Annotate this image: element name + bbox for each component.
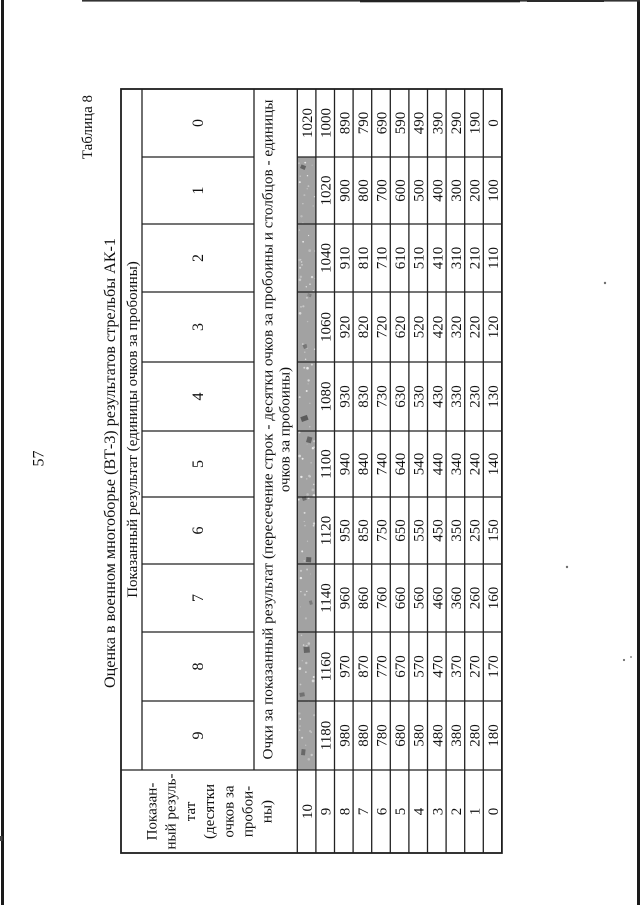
svg-text:260: 260 (468, 587, 484, 610)
svg-text:850: 850 (356, 519, 372, 542)
svg-text:400: 400 (430, 179, 446, 202)
svg-text:930: 930 (337, 385, 353, 408)
svg-text:840: 840 (356, 453, 372, 476)
svg-text:4: 4 (190, 393, 207, 401)
svg-text:540: 540 (412, 453, 428, 476)
svg-text:450: 450 (430, 519, 446, 542)
svg-text:380: 380 (449, 724, 465, 747)
svg-text:950: 950 (337, 519, 353, 542)
svg-text:980: 980 (337, 724, 353, 747)
svg-text:9: 9 (319, 808, 335, 816)
svg-text:580: 580 (412, 724, 428, 747)
svg-text:200: 200 (468, 179, 484, 202)
svg-text:490: 490 (412, 112, 428, 135)
svg-text:120: 120 (486, 316, 502, 339)
svg-text:880: 880 (356, 724, 372, 747)
svg-text:1140: 1140 (319, 583, 335, 612)
svg-text:1000: 1000 (319, 108, 335, 138)
svg-text:910: 910 (337, 247, 353, 270)
svg-text:960: 960 (337, 587, 353, 610)
svg-text:8: 8 (190, 663, 207, 671)
svg-text:Оценка в военном многоборье (В: Оценка в военном многоборье (ВТ-3) резул… (102, 238, 119, 688)
svg-text:1080: 1080 (319, 382, 335, 412)
svg-text:110: 110 (486, 247, 502, 269)
svg-text:140: 140 (486, 453, 502, 476)
svg-text:500: 500 (412, 179, 428, 202)
svg-text:640: 640 (393, 453, 409, 476)
svg-text:720: 720 (375, 316, 391, 339)
svg-text:550: 550 (412, 519, 428, 542)
svg-text:очков за: очков за (221, 785, 237, 837)
svg-text:280: 280 (468, 724, 484, 747)
svg-text:690: 690 (375, 112, 391, 135)
svg-text:410: 410 (430, 247, 446, 270)
svg-text:860: 860 (356, 587, 372, 610)
svg-text:1: 1 (190, 187, 207, 195)
svg-text:0: 0 (190, 119, 207, 127)
svg-text:780: 780 (375, 724, 391, 747)
svg-text:970: 970 (337, 655, 353, 678)
svg-text:620: 620 (393, 316, 409, 339)
svg-text:760: 760 (375, 587, 391, 610)
svg-text:670: 670 (393, 655, 409, 678)
svg-text:100: 100 (486, 179, 502, 202)
svg-text:240: 240 (468, 453, 484, 476)
svg-text:2: 2 (449, 808, 465, 816)
svg-text:360: 360 (449, 587, 465, 610)
svg-text:390: 390 (430, 112, 446, 135)
svg-text:300: 300 (449, 179, 465, 202)
svg-text:1020: 1020 (319, 176, 335, 206)
svg-text:Показан-: Показан- (145, 783, 161, 841)
svg-text:ны): ны) (260, 800, 276, 823)
svg-text:1060: 1060 (319, 312, 335, 342)
svg-text:0: 0 (486, 119, 502, 127)
svg-text:750: 750 (375, 519, 391, 542)
svg-text:1100: 1100 (319, 449, 335, 478)
svg-text:530: 530 (412, 385, 428, 408)
svg-text:250: 250 (468, 519, 484, 542)
svg-text:3: 3 (430, 808, 446, 816)
svg-text:820: 820 (356, 316, 372, 339)
svg-text:130: 130 (486, 385, 502, 408)
svg-text:900: 900 (337, 179, 353, 202)
svg-text:680: 680 (393, 724, 409, 747)
svg-text:890: 890 (337, 112, 353, 135)
svg-text:470: 470 (430, 655, 446, 678)
svg-text:1040: 1040 (319, 243, 335, 273)
svg-text:870: 870 (356, 655, 372, 678)
svg-text:4: 4 (412, 807, 428, 815)
svg-text:730: 730 (375, 385, 391, 408)
svg-text:1180: 1180 (319, 721, 335, 750)
svg-text:170: 170 (486, 655, 502, 678)
svg-text:пробои-: пробои- (241, 786, 257, 837)
svg-text:очков за пробоины): очков за пробоины) (278, 367, 294, 492)
svg-text:230: 230 (468, 385, 484, 408)
svg-text:8: 8 (337, 808, 353, 816)
svg-text:1: 1 (468, 808, 484, 816)
svg-text:610: 610 (393, 247, 409, 270)
svg-text:Очки за показанный результат (: Очки за показанный результат (пересечени… (261, 100, 277, 760)
svg-text:330: 330 (449, 385, 465, 408)
svg-text:57: 57 (31, 451, 48, 467)
svg-text:210: 210 (468, 247, 484, 270)
svg-text:340: 340 (449, 453, 465, 476)
svg-text:7: 7 (190, 594, 207, 602)
svg-text:600: 600 (393, 179, 409, 202)
svg-text:190: 190 (468, 112, 484, 135)
svg-text:810: 810 (356, 247, 372, 270)
svg-text:5: 5 (190, 460, 207, 468)
svg-text:270: 270 (468, 655, 484, 678)
svg-text:460: 460 (430, 587, 446, 610)
svg-text:350: 350 (449, 519, 465, 542)
svg-text:220: 220 (468, 316, 484, 339)
svg-text:тат: тат (183, 801, 199, 821)
svg-text:320: 320 (449, 316, 465, 339)
svg-text:430: 430 (430, 385, 446, 408)
svg-text:150: 150 (486, 519, 502, 542)
svg-text:940: 940 (337, 453, 353, 476)
svg-text:700: 700 (375, 179, 391, 202)
svg-text:520: 520 (412, 316, 428, 339)
svg-text:770: 770 (375, 655, 391, 678)
svg-text:560: 560 (412, 587, 428, 610)
svg-text:710: 710 (375, 247, 391, 270)
svg-text:10: 10 (300, 804, 316, 819)
svg-text:180: 180 (486, 724, 502, 747)
svg-text:790: 790 (356, 112, 372, 135)
svg-text:660: 660 (393, 587, 409, 610)
svg-text:590: 590 (393, 112, 409, 135)
svg-text:1020: 1020 (300, 108, 316, 138)
svg-text:6: 6 (375, 807, 391, 815)
svg-text:920: 920 (337, 316, 353, 339)
svg-text:Показанный результат (единицы: Показанный результат (единицы очков за п… (125, 261, 141, 598)
svg-text:440: 440 (430, 453, 446, 476)
svg-text:480: 480 (430, 724, 446, 747)
svg-text:290: 290 (449, 112, 465, 135)
svg-text:800: 800 (356, 179, 372, 202)
svg-text:650: 650 (393, 519, 409, 542)
svg-text:0: 0 (486, 808, 502, 816)
svg-text:160: 160 (486, 587, 502, 610)
svg-text:9: 9 (190, 732, 207, 740)
svg-text:740: 740 (375, 453, 391, 476)
svg-text:(десятки: (десятки (202, 784, 218, 839)
svg-text:3: 3 (190, 323, 207, 331)
svg-text:ный резуль-: ный резуль- (164, 773, 180, 849)
svg-text:5: 5 (393, 808, 409, 816)
svg-text:510: 510 (412, 247, 428, 270)
svg-text:310: 310 (449, 247, 465, 270)
svg-text:1160: 1160 (319, 652, 335, 681)
svg-text:630: 630 (393, 385, 409, 408)
svg-text:420: 420 (430, 316, 446, 339)
svg-text:6: 6 (190, 527, 207, 535)
svg-text:570: 570 (412, 655, 428, 678)
svg-text:830: 830 (356, 385, 372, 408)
svg-text:370: 370 (449, 655, 465, 678)
svg-text:2: 2 (190, 254, 207, 262)
svg-text:7: 7 (356, 807, 372, 815)
svg-text:1120: 1120 (319, 516, 335, 545)
svg-text:Таблица 8: Таблица 8 (80, 95, 96, 159)
